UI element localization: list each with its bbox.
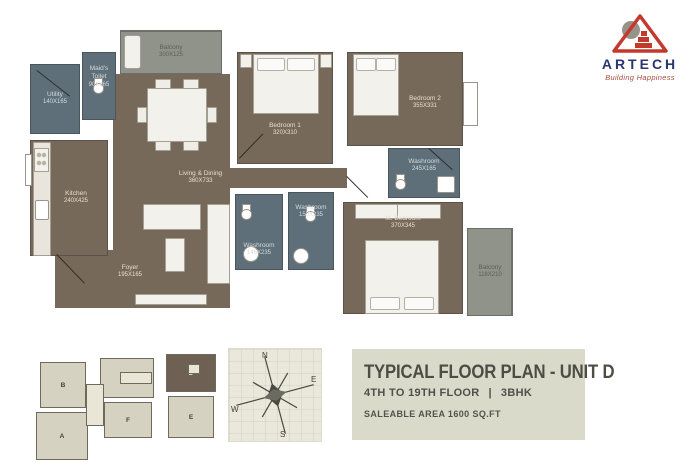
stove-icon xyxy=(34,148,49,172)
room-name: Balcony xyxy=(159,44,182,52)
room-label-bedroom-2: Bedroom 2 355X331 xyxy=(409,95,441,111)
nightstand xyxy=(320,54,332,68)
plan-subtitle: 4TH TO 19TH FLOOR|3BHK xyxy=(364,387,585,399)
toilet-icon xyxy=(93,78,104,94)
room-name: Utility xyxy=(47,91,63,99)
room-label-kitchen: Kitchen 240X425 xyxy=(64,190,88,206)
key-plan-core xyxy=(188,364,200,374)
room-dims: 360X733 xyxy=(188,178,212,186)
toilet-icon xyxy=(395,174,406,190)
saleable-area: SALEABLE AREA 1600 SQ.FT xyxy=(364,409,585,419)
compass-north-label: N xyxy=(262,351,268,360)
artech-logo-icon xyxy=(611,14,669,54)
room-dims: 118X210 xyxy=(478,272,502,280)
room-label-washroom-right: Washroom 245X165 xyxy=(408,158,439,174)
dining-chair xyxy=(137,107,147,123)
toilet-icon xyxy=(305,206,316,222)
room-label-utility: Utility 140X165 xyxy=(43,91,67,107)
key-plan-unit-f: F xyxy=(104,402,152,438)
wardrobe xyxy=(397,204,441,219)
window xyxy=(463,82,478,126)
balcony-railing xyxy=(511,228,513,316)
key-plan-unit-b: B xyxy=(40,362,86,408)
room-dims: 140X165 xyxy=(43,99,67,107)
compass-east-label: E xyxy=(311,375,316,384)
kitchen-sink-icon xyxy=(35,200,49,220)
door-swing xyxy=(346,176,368,198)
room-utility: Utility 140X165 xyxy=(30,64,80,134)
tv-unit xyxy=(135,294,207,305)
washbasin-icon xyxy=(437,176,455,193)
separator: | xyxy=(489,387,492,399)
dining-chair xyxy=(207,107,217,123)
brand-tagline: Building Happiness xyxy=(605,73,675,82)
room-label-balcony-top: Balcony 300X125 xyxy=(159,44,183,60)
compass-star-icon xyxy=(219,339,332,452)
sofa xyxy=(207,204,230,284)
title-block: TYPICAL FLOOR PLAN - UNIT D 4TH TO 19TH … xyxy=(352,349,585,440)
coffee-table xyxy=(165,238,185,272)
unit-type: 3BHK xyxy=(501,387,532,399)
key-plan-corridor xyxy=(120,372,152,384)
dining-table xyxy=(147,88,207,142)
room-name: Kitchen xyxy=(65,190,87,198)
unit-floor-plan: Living & Dining 360X733 Foyer 195X165 Ut… xyxy=(25,8,537,346)
room-dims: 245X165 xyxy=(412,166,436,174)
key-plan-unit-e: E xyxy=(168,396,214,438)
room-label-living-dining: Living & Dining 360X733 xyxy=(143,170,258,186)
bed xyxy=(253,54,319,114)
balcony-planter xyxy=(124,35,141,69)
unit-letter: A xyxy=(60,433,65,440)
compass-west-label: W xyxy=(231,405,239,414)
compass-south-label: S xyxy=(280,430,285,439)
window xyxy=(25,154,32,186)
unit-letter: B xyxy=(61,382,66,389)
floor-plan-sheet: Living & Dining 360X733 Foyer 195X165 Ut… xyxy=(0,0,690,473)
room-label-balcony-right: Balcony 118X210 xyxy=(478,264,502,280)
dining-chair xyxy=(155,141,171,151)
artech-logo: ARTECH Building Happiness xyxy=(594,14,686,90)
room-dims: 240X425 xyxy=(64,198,88,206)
washbasin-icon xyxy=(243,246,259,262)
wardrobe xyxy=(355,204,399,219)
key-plan-unit-a: A xyxy=(36,412,88,460)
unit-letter: F xyxy=(126,417,130,424)
balcony-railing xyxy=(120,30,222,32)
plan-title: TYPICAL FLOOR PLAN - UNIT D xyxy=(364,362,614,384)
room-name: Bedroom 2 xyxy=(409,95,441,103)
room-name: Balcony xyxy=(478,264,501,272)
key-plan: B C D E F A xyxy=(28,350,218,464)
room-name: Living & Dining xyxy=(179,170,222,178)
brand-name: ARTECH xyxy=(602,56,678,72)
key-plan-corridor xyxy=(86,384,104,426)
unit-letter: E xyxy=(189,414,193,421)
compass-rose: N E W S xyxy=(228,348,322,442)
room-dims: 355X331 xyxy=(413,103,437,111)
nightstand xyxy=(240,54,252,68)
room-name: Washroom xyxy=(408,158,439,166)
floor-range: 4TH TO 19TH FLOOR xyxy=(364,387,480,399)
room-balcony-right: Balcony 118X210 xyxy=(467,228,513,316)
dining-chair xyxy=(183,141,199,151)
bed xyxy=(365,240,439,314)
room-name: Bedroom 1 xyxy=(269,122,301,130)
toilet-icon xyxy=(241,204,252,220)
room-dims: 370X345 xyxy=(391,223,415,231)
bed xyxy=(353,54,399,116)
washbasin-icon xyxy=(293,248,309,264)
room-dims: 320X310 xyxy=(273,130,297,138)
room-dims: 300X125 xyxy=(159,52,183,60)
room-label-bedroom-1: Bedroom 1 320X310 xyxy=(269,122,301,138)
sofa xyxy=(143,204,201,230)
